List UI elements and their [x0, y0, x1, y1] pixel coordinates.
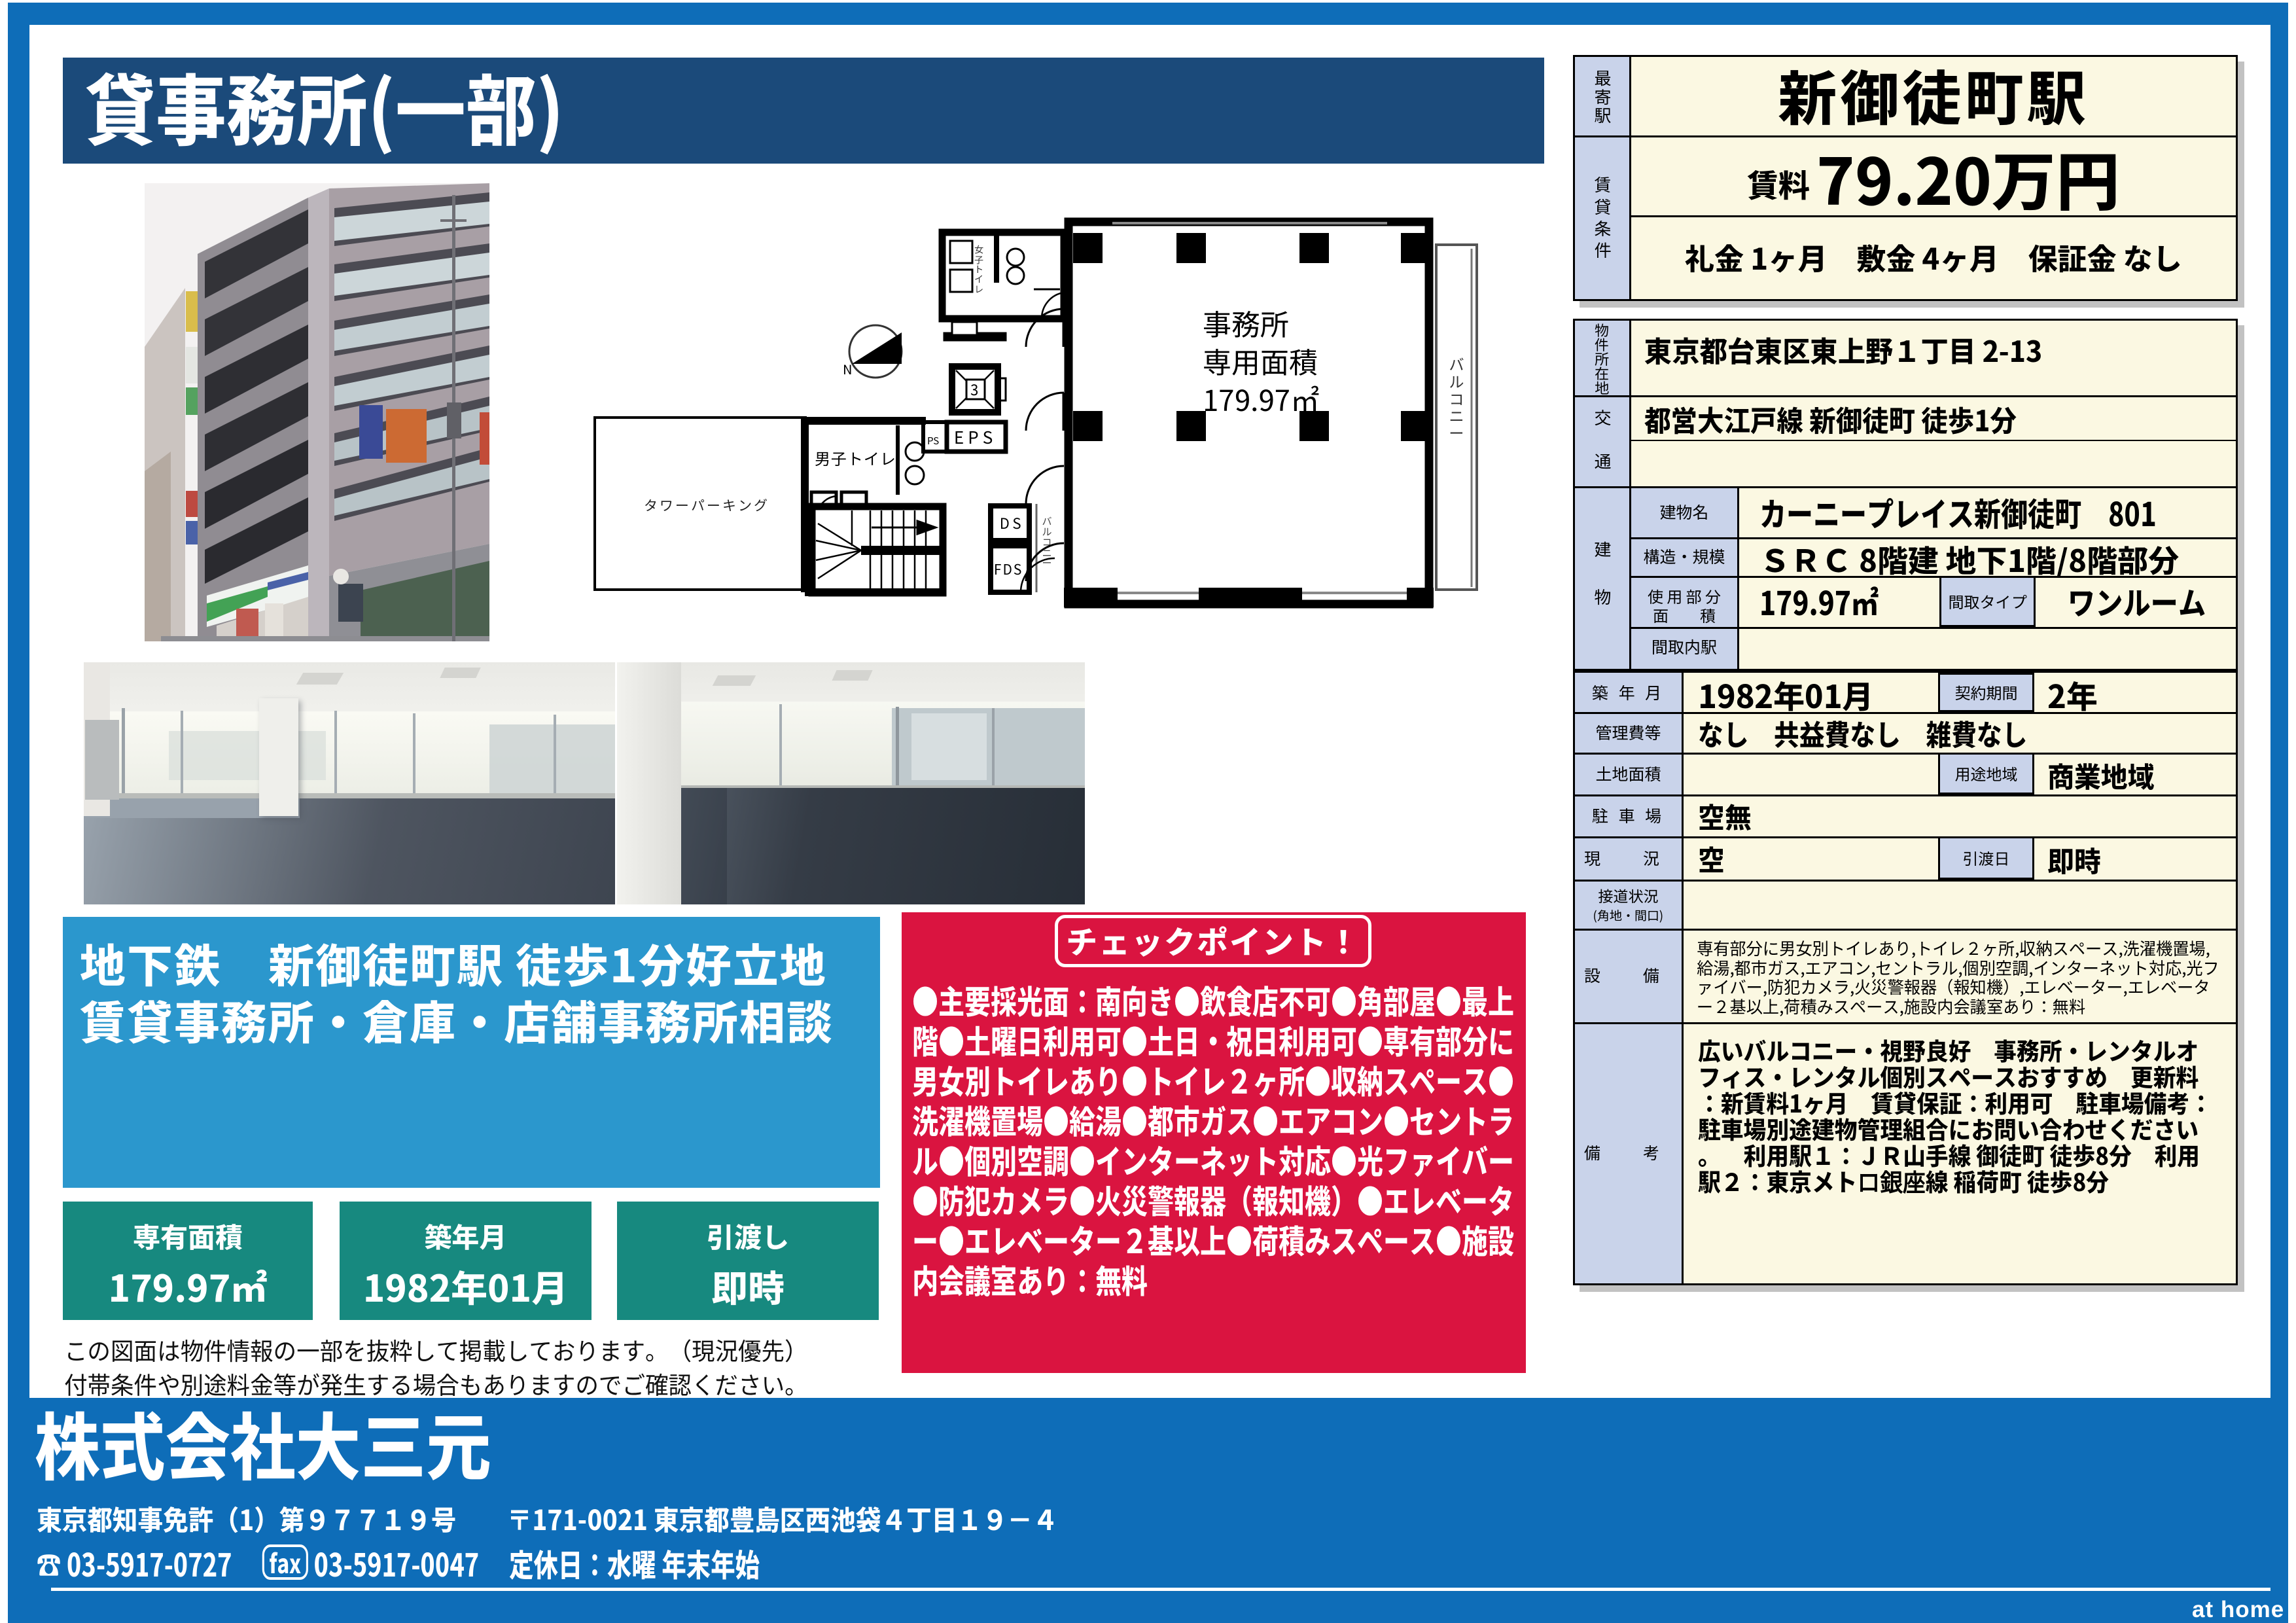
svg-text:PS: PS: [927, 434, 940, 448]
svg-text:バルコニー: バルコニー: [1445, 357, 1468, 442]
svg-text:専用面積: 専用面積: [1203, 340, 1318, 382]
svg-text:事務所: 事務所: [1203, 302, 1289, 344]
svg-text:EPS: EPS: [954, 425, 997, 449]
svg-text:FDS: FDS: [994, 560, 1023, 579]
svg-text:179.97㎡: 179.97㎡: [1203, 378, 1319, 419]
svg-text:男子トイレ: 男子トイレ: [815, 446, 896, 469]
svg-text:タワーパーキング: タワーパーキング: [644, 495, 769, 515]
svg-text:女子トイレ: 女子トイレ: [972, 245, 985, 294]
svg-text:3: 3: [970, 379, 978, 400]
svg-text:DS: DS: [1000, 512, 1023, 533]
svg-text:N: N: [843, 359, 852, 378]
